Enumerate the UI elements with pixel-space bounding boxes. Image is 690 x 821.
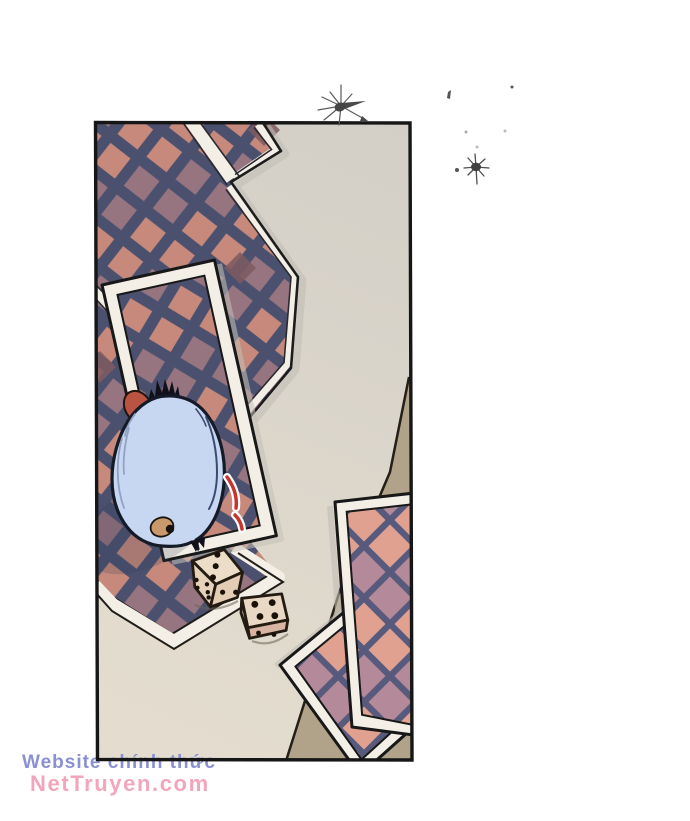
svg-text:NetTruyen.com: NetTruyen.com <box>30 771 210 796</box>
svg-text:Website chính thức: Website chính thức <box>22 752 216 773</box>
